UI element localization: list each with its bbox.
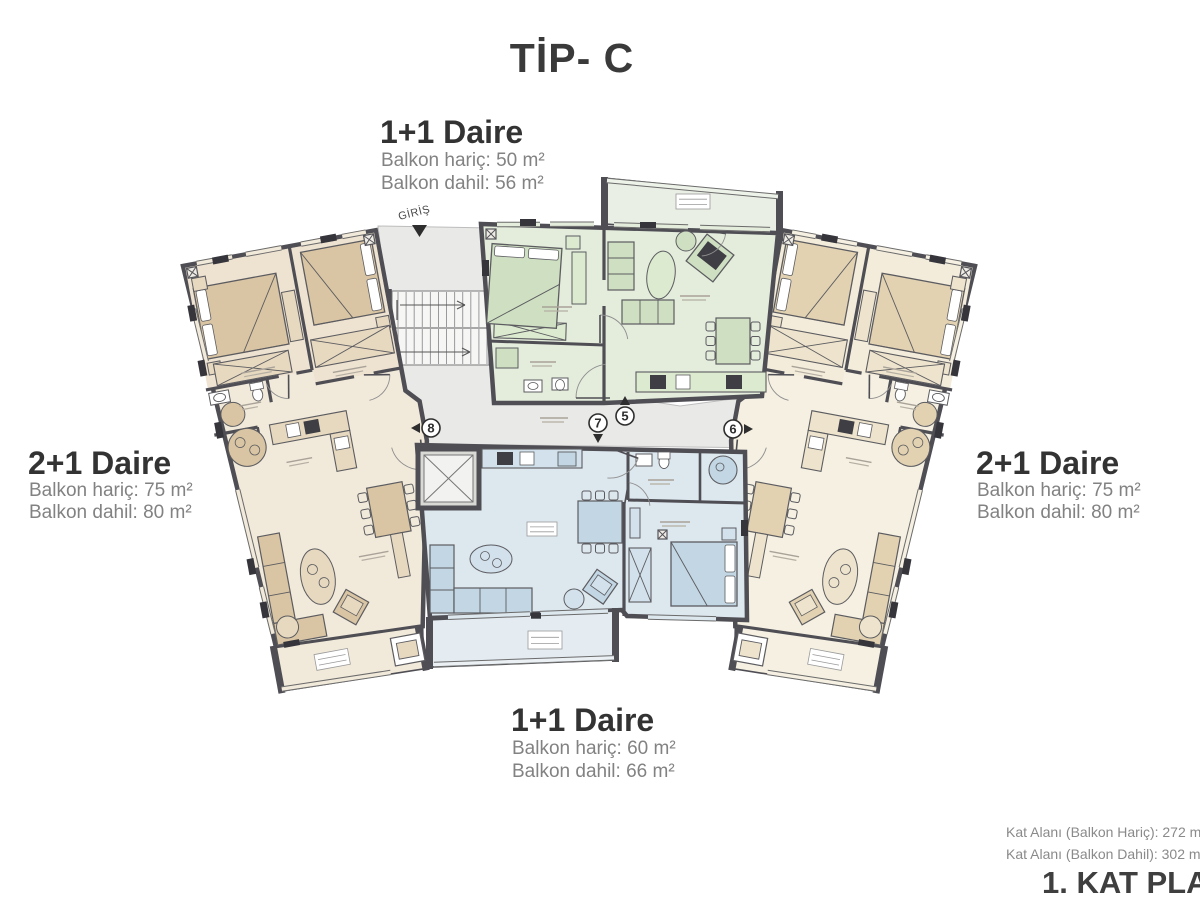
svg-text:5: 5: [621, 409, 628, 424]
svg-text:1. KAT PLANI: 1. KAT PLANI: [1042, 865, 1200, 900]
svg-text:Balkon dahil: 56 m²: Balkon dahil: 56 m²: [381, 173, 544, 194]
svg-text:Kat Alanı (Balkon Hariç): 272: Kat Alanı (Balkon Hariç): 272 m²: [1006, 824, 1200, 840]
svg-text:Balkon hariç: 75 m²: Balkon hariç: 75 m²: [977, 480, 1141, 501]
svg-text:2+1 Daire: 2+1 Daire: [976, 445, 1119, 481]
svg-text:Balkon hariç: 50 m²: Balkon hariç: 50 m²: [381, 150, 545, 171]
svg-text:Balkon dahil: 80 m²: Balkon dahil: 80 m²: [977, 502, 1140, 523]
svg-text:7: 7: [594, 416, 601, 431]
svg-text:Balkon hariç: 75 m²: Balkon hariç: 75 m²: [29, 480, 193, 501]
svg-text:Kat Alanı (Balkon Dahil): 302: Kat Alanı (Balkon Dahil): 302 m²: [1006, 846, 1200, 862]
svg-text:TİP- C: TİP- C: [510, 35, 634, 81]
svg-text:1+1 Daire: 1+1 Daire: [380, 114, 523, 150]
svg-text:Balkon dahil: 80 m²: Balkon dahil: 80 m²: [29, 502, 192, 523]
svg-text:6: 6: [729, 422, 736, 437]
svg-text:Balkon hariç: 60 m²: Balkon hariç: 60 m²: [512, 738, 676, 759]
svg-text:1+1 Daire: 1+1 Daire: [511, 702, 654, 738]
svg-text:Balkon dahil: 66 m²: Balkon dahil: 66 m²: [512, 761, 675, 782]
svg-text:2+1 Daire: 2+1 Daire: [28, 445, 171, 481]
svg-text:8: 8: [427, 421, 434, 436]
